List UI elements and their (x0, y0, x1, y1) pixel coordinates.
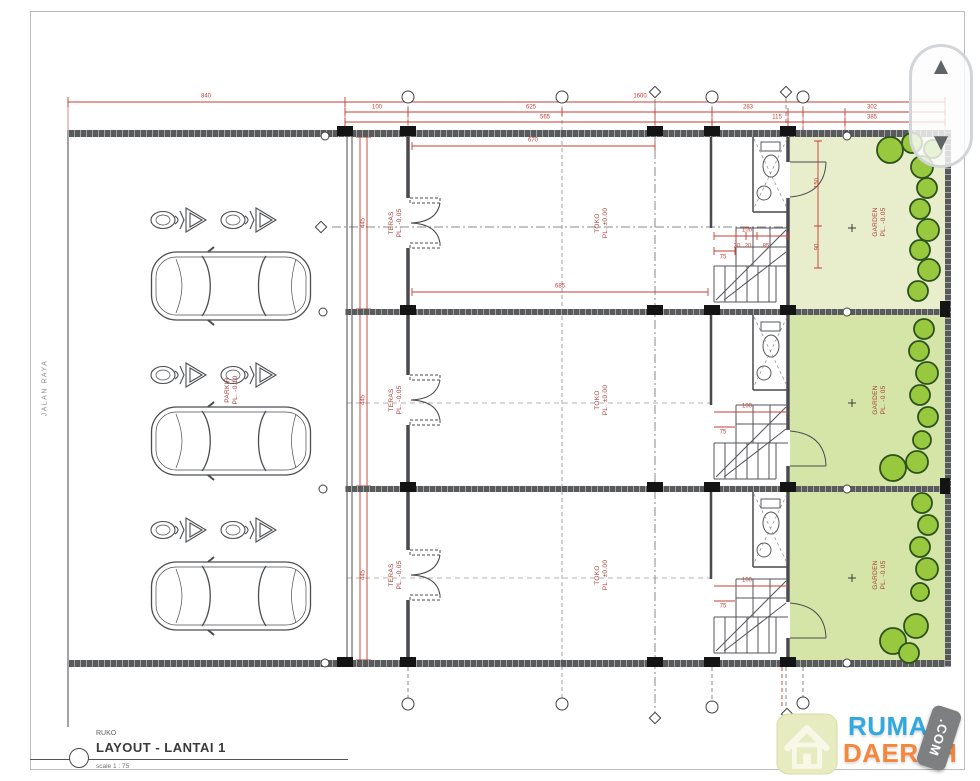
front-double-doors (410, 198, 440, 600)
toilet-fixtures (754, 139, 787, 563)
scroll-up-button[interactable]: ▲ (929, 55, 953, 79)
right-boundary-wall (945, 130, 951, 667)
grid-leader-lines (332, 98, 803, 712)
car-icon-3 (152, 557, 311, 635)
drawing-title: LAYOUT - LANTAI 1 (96, 740, 226, 755)
red-dimension-lines (68, 97, 945, 706)
drawing-scale: scale 1 : 75 (96, 763, 129, 770)
motorcycle-icon-1 (151, 208, 206, 232)
top-boundary-wall (68, 130, 948, 137)
car-icon-2 (152, 402, 311, 480)
motorcycle-icon-5 (151, 518, 206, 542)
scroll-widget[interactable]: ▲ ▼ (909, 44, 973, 168)
car-icons (152, 247, 311, 635)
party-wall-1 (345, 309, 948, 315)
project-name: RUKO (96, 730, 116, 737)
bottom-boundary-wall (68, 660, 948, 667)
party-wall-2 (345, 486, 948, 492)
scroll-down-button[interactable]: ▼ (929, 131, 953, 155)
title-block: RUKO LAYOUT - LANTAI 1 scale 1 : 75 (30, 720, 360, 775)
motorcycle-icon-2 (221, 208, 276, 232)
motorcycle-icon-6 (221, 518, 276, 542)
stairs (714, 228, 788, 653)
car-icon-1 (152, 247, 311, 325)
house-icon (776, 713, 838, 775)
arrow-up-icon: ▲ (929, 53, 953, 80)
motorcycle-icon-4 (221, 363, 276, 387)
survey-cross-markers (848, 224, 856, 582)
logo-watermark: RUMAH DAERAH .COM (774, 705, 974, 777)
logo-com-label: .COM (926, 718, 952, 759)
motorcycle-icon-3 (151, 363, 206, 387)
drawing-marker-circle (69, 748, 89, 768)
rear-garden-doors (790, 162, 826, 638)
arrow-down-icon: ▼ (929, 129, 953, 156)
